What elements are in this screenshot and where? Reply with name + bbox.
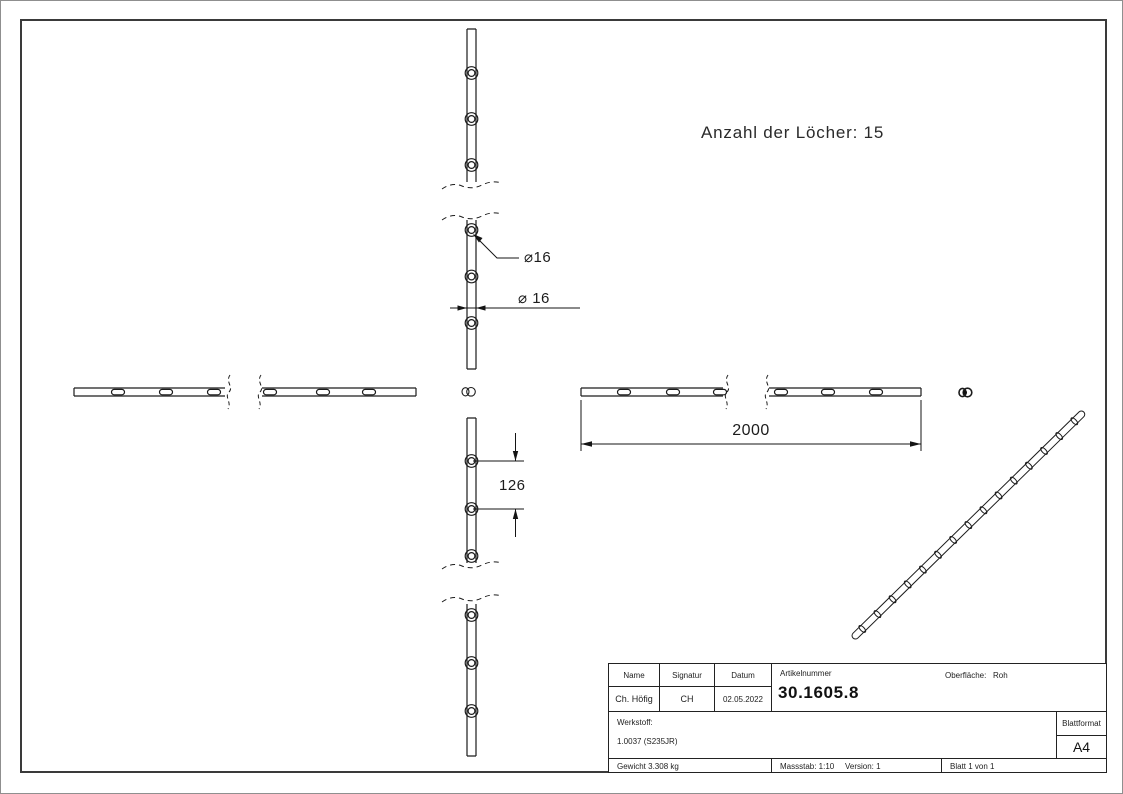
blattformat-value: A4 bbox=[1056, 735, 1107, 759]
title-block-werkstoff-cell: Werkstoff: 1.0037 (S235JR) bbox=[608, 711, 1057, 759]
dimension-bar-diameter bbox=[450, 305, 580, 310]
oberflaeche-value: Roh bbox=[993, 671, 1008, 680]
break-line bbox=[258, 375, 261, 409]
werkstoff-label: Werkstoff: bbox=[617, 718, 653, 727]
side-view-right bbox=[581, 375, 921, 409]
oberflaeche-label: Oberfläche: bbox=[945, 671, 986, 680]
drawing-sheet: Anzahl der Löcher: 15 ⌀16 ⌀ 16 2000 126 … bbox=[0, 0, 1123, 794]
gewicht-cell: Gewicht 3.308 kg bbox=[608, 758, 772, 773]
hole-count-note: Anzahl der Löcher: 15 bbox=[701, 123, 884, 143]
title-block-signatur: CH bbox=[659, 686, 715, 712]
break-line bbox=[227, 375, 230, 409]
vertical-bar-segment-3 bbox=[465, 418, 478, 563]
artikelnummer-label: Artikelnummer bbox=[780, 669, 832, 678]
gewicht-value: Gewicht 3.308 kg bbox=[617, 762, 679, 771]
blatt-value: Blatt 1 von 1 bbox=[950, 762, 994, 771]
end-view-left bbox=[462, 388, 475, 397]
break-line bbox=[442, 562, 502, 569]
dim-label-hole-diameter: ⌀16 bbox=[524, 248, 551, 266]
title-block-header-name: Name bbox=[608, 663, 660, 687]
dim-label-hole-spacing: 126 bbox=[499, 477, 526, 494]
version-value: Version: 1 bbox=[845, 762, 881, 771]
massstab-cell: Massstab: 1:10 Version: 1 bbox=[771, 758, 942, 773]
title-block-datum: 02.05.2022 bbox=[714, 686, 772, 712]
blattformat-label: Blattformat bbox=[1056, 711, 1107, 736]
vertical-bar-segment-2 bbox=[465, 220, 478, 369]
vertical-bar-segment-4 bbox=[465, 604, 478, 756]
break-line bbox=[442, 595, 502, 602]
break-line bbox=[442, 213, 502, 220]
break-line bbox=[442, 182, 502, 189]
title-block-name: Ch. Höfig bbox=[608, 686, 660, 712]
dim-label-bar-diameter: ⌀ 16 bbox=[518, 289, 550, 307]
massstab-value: Massstab: 1:10 bbox=[780, 762, 834, 771]
title-block-article-surface-cell: Artikelnummer 30.1605.8 Oberfläche: Roh bbox=[771, 663, 1107, 712]
title-block-header-signatur: Signatur bbox=[659, 663, 715, 687]
break-line bbox=[765, 375, 768, 409]
werkstoff-value: 1.0037 (S235JR) bbox=[617, 737, 677, 746]
blatt-cell: Blatt 1 von 1 bbox=[941, 758, 1107, 773]
title-block-header-datum: Datum bbox=[714, 663, 772, 687]
front-view-vertical-bar bbox=[442, 29, 502, 756]
side-view-left bbox=[74, 375, 416, 409]
dim-label-total-length: 2000 bbox=[723, 422, 779, 440]
end-view-right bbox=[959, 388, 972, 397]
vertical-bar-segment-1 bbox=[465, 29, 478, 182]
dimension-hole-diameter-leader bbox=[473, 234, 519, 258]
artikelnummer-value: 30.1605.8 bbox=[778, 683, 859, 703]
